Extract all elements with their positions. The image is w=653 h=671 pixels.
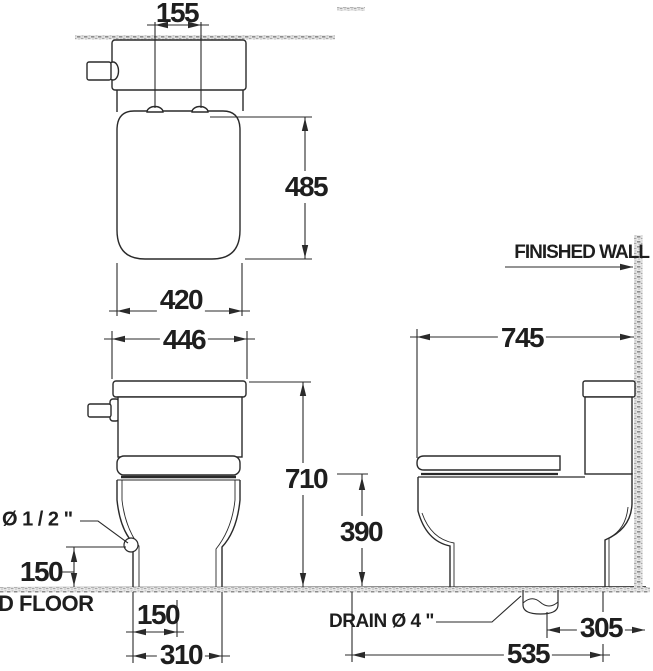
drain-opening xyxy=(523,599,558,606)
dim-base-setback: 150 xyxy=(137,599,179,631)
tank-lid-side xyxy=(583,381,635,397)
tank-body-front xyxy=(118,397,242,457)
supply-diameter-label: Ø 1 / 2 " xyxy=(2,509,73,532)
dimension-drawing: 155 485 420 446 710 150 150 310 745 390 … xyxy=(0,0,653,671)
seat-hinge-right xyxy=(192,107,208,113)
tank-lid-front xyxy=(113,381,246,397)
tank-body-plan xyxy=(117,90,243,112)
wall-hatch-side xyxy=(634,235,643,587)
pedestal-left-front xyxy=(117,480,133,587)
flush-handle-front xyxy=(88,404,111,417)
wall-hatch-plan xyxy=(75,7,365,40)
dim-drain-to-wall: 305 xyxy=(577,612,625,644)
side-view xyxy=(417,381,635,614)
dim-base-length: 535 xyxy=(504,638,552,670)
pedestal-right-front xyxy=(222,480,240,587)
seat-outline-plan xyxy=(117,111,240,259)
tank-lid-plan xyxy=(112,40,246,90)
drain-diameter-label: DRAIN Ø 4 " xyxy=(329,611,434,633)
dim-overall-depth: 745 xyxy=(498,322,546,354)
dim-tank-width: 420 xyxy=(157,284,205,316)
pedestal-front-side xyxy=(418,477,450,587)
dim-bowl-height: 390 xyxy=(337,516,385,548)
supply-inlet-circle xyxy=(124,538,138,552)
seat-side xyxy=(417,456,560,470)
dim-overall-height: 710 xyxy=(282,463,330,495)
plan-view xyxy=(87,40,246,259)
dim-tank-depth: 485 xyxy=(282,171,330,203)
seat-front xyxy=(117,456,240,475)
drawing-canvas xyxy=(0,0,653,671)
tank-body-side xyxy=(585,397,632,474)
flush-handle-plan xyxy=(87,62,111,80)
front-view xyxy=(88,381,246,587)
dim-hinge-spacing: 155 xyxy=(156,0,198,29)
dim-base-width: 310 xyxy=(157,639,205,671)
finished-wall-label: FINISHED WALL xyxy=(514,242,649,264)
dim-overall-width: 446 xyxy=(160,324,208,356)
finished-floor-label: D FLOOR xyxy=(0,591,94,617)
floor-hatch xyxy=(0,587,650,593)
dim-supply-height: 150 xyxy=(20,556,62,588)
